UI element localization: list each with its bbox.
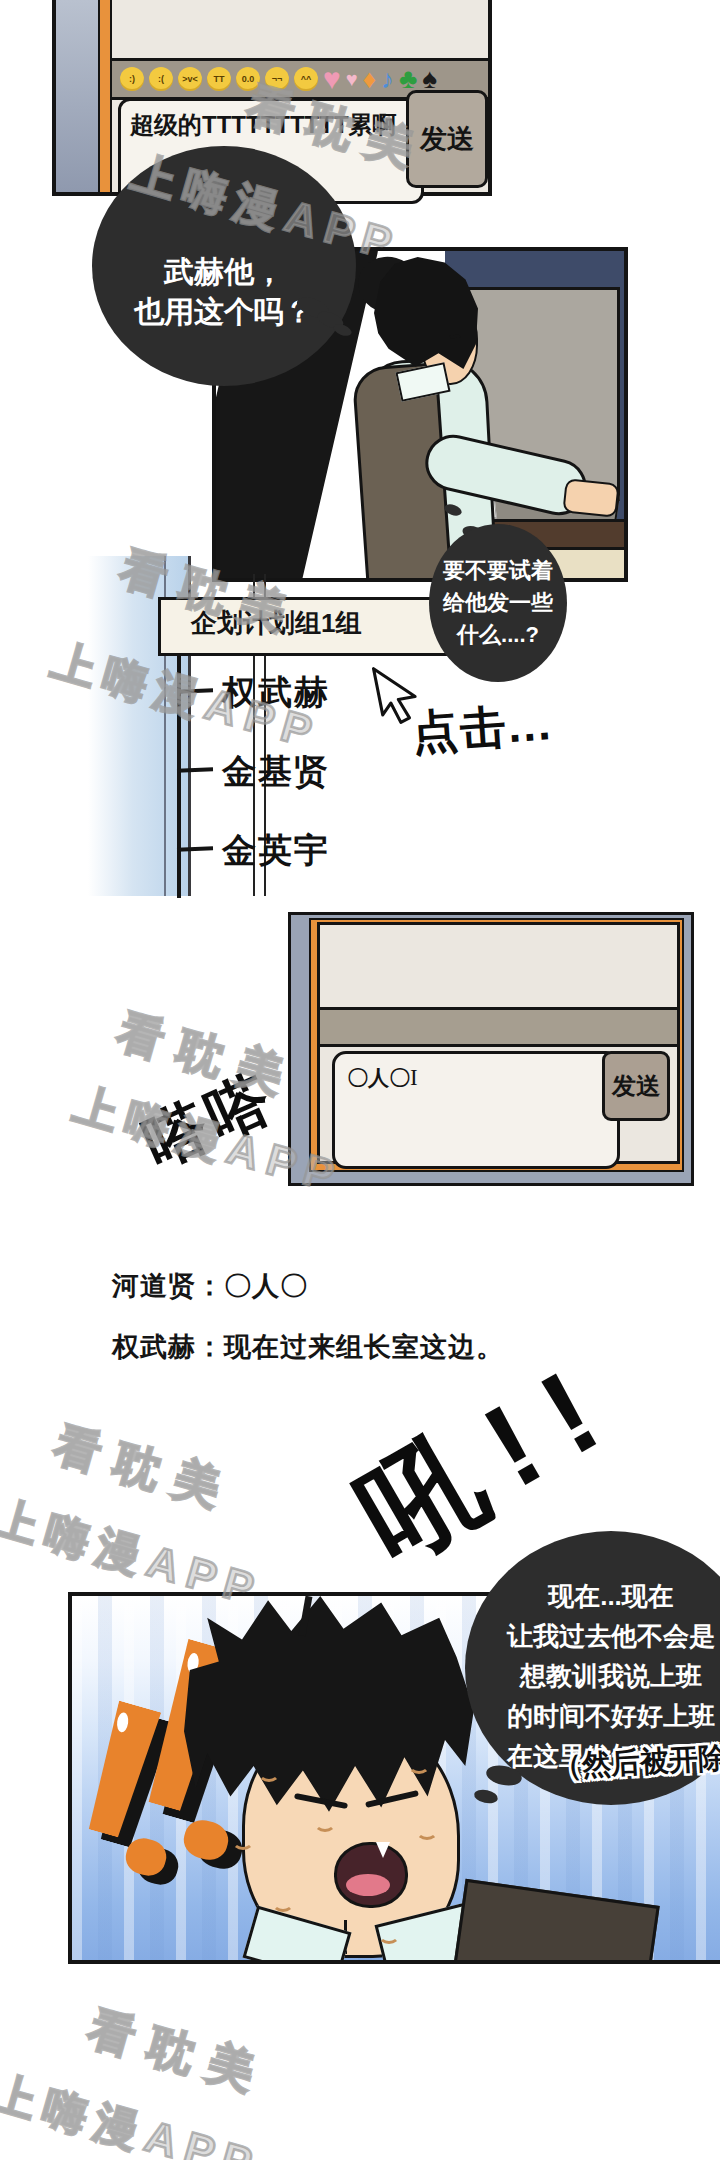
tree-branch <box>177 767 213 772</box>
watermark-brand: 看耽美 <box>47 1414 243 1525</box>
jacket-shoulder <box>452 1879 659 1964</box>
panel-mid-chat-window: 〇人〇I 发送 <box>288 912 694 1186</box>
shocked-man-hair <box>184 1596 474 1814</box>
thought-line: 现在...现在 <box>507 1576 715 1616</box>
emoji-glyph: >v< <box>182 74 198 84</box>
thought-line: 想教训我说上班 <box>507 1656 715 1696</box>
heart-icon[interactable]: ♥ <box>323 64 341 94</box>
tree-line <box>177 650 181 898</box>
man-hand <box>562 478 619 517</box>
emoji-smile-icon[interactable]: :) <box>120 67 144 91</box>
send-button-top[interactable]: 发送 <box>406 90 488 188</box>
emoji-glyph: :) <box>129 74 135 84</box>
thought-line: 也用这个吗？ <box>134 292 314 332</box>
thought-line: 给他发一些 <box>443 587 553 619</box>
emoji-glyph: 0.0 <box>242 74 255 84</box>
music-note-icon[interactable]: ♪ <box>381 66 394 92</box>
message-input-mid[interactable]: 〇人〇I <box>332 1051 620 1169</box>
emoji-laugh-icon[interactable]: >v< <box>178 67 202 91</box>
tree-branch <box>177 846 213 851</box>
transcript-line-1: 河道贤：〇人〇 <box>112 1268 308 1304</box>
chat-toolbar <box>320 1007 677 1047</box>
sfx-click-text: 点击... <box>410 693 554 765</box>
chat-window-body: 〇人〇I 发送 <box>317 922 680 1164</box>
sweat-drop <box>408 1756 430 1774</box>
emoji-smug-icon[interactable]: ¬¬ <box>265 67 289 91</box>
contact-item-kim-gihyun[interactable]: 金基贤 <box>222 749 392 795</box>
sweat-drop <box>416 1822 438 1840</box>
watermark-app: 上嗨漫APP <box>0 2063 267 2160</box>
tongue <box>346 1874 390 1896</box>
emoji-glyph: :( <box>158 74 164 84</box>
text-cursor: I <box>410 1065 418 1090</box>
thought-bubble-2: 要不要试着 给他发一些 什么....? <box>429 524 567 682</box>
monitor-bezel <box>56 0 100 192</box>
emoji-glyph: TT <box>214 74 225 84</box>
emoji-glyph: ¬¬ <box>272 74 283 84</box>
emoji-blush-icon[interactable]: ^^ <box>294 67 318 91</box>
thought-line: 的时间不好好上班 <box>507 1696 715 1736</box>
club-icon[interactable]: ♣ <box>399 65 417 93</box>
emoji-stare-icon[interactable]: 0.0 <box>236 67 260 91</box>
sweat-drop <box>314 1814 336 1832</box>
monitor-orange-frame <box>100 0 112 192</box>
thought-line: 让我过去他不会是 <box>507 1616 715 1656</box>
thought-bubble-1: 武赫他， 也用这个吗？ <box>92 146 356 386</box>
diamond-icon[interactable]: ♦ <box>363 66 376 92</box>
input-value: 〇人〇 <box>347 1066 410 1089</box>
sweat-drop <box>272 1894 294 1912</box>
contact-item-kim-youngwoo[interactable]: 金英宇 <box>222 828 392 874</box>
emoji-cry-icon[interactable]: TT <box>207 67 231 91</box>
thought-line: 要不要试着 <box>443 555 553 587</box>
spade-icon[interactable]: ♠ <box>422 65 437 93</box>
emoji-frown-icon[interactable]: :( <box>149 67 173 91</box>
sweat-drop <box>232 1832 254 1850</box>
sweat-drop <box>378 1926 400 1944</box>
sweat-drop <box>258 1764 280 1782</box>
transcript-line-2: 权武赫：现在过来组长室这边。 <box>112 1329 504 1365</box>
emoji-glyph: ^^ <box>301 74 312 84</box>
thought-line: 武赫他， <box>134 252 314 292</box>
sfx-typing-text: 嗒嗒 <box>131 1054 289 1186</box>
thought-line: 什么....? <box>443 619 553 651</box>
watermark-brand: 看耽美 <box>81 1998 277 2109</box>
tree-branch <box>177 688 213 693</box>
send-button-mid[interactable]: 发送 <box>602 1051 670 1121</box>
contact-group-header: 企划计划组1组 <box>158 597 456 656</box>
small-heart-icon[interactable]: ♥ <box>346 69 358 89</box>
